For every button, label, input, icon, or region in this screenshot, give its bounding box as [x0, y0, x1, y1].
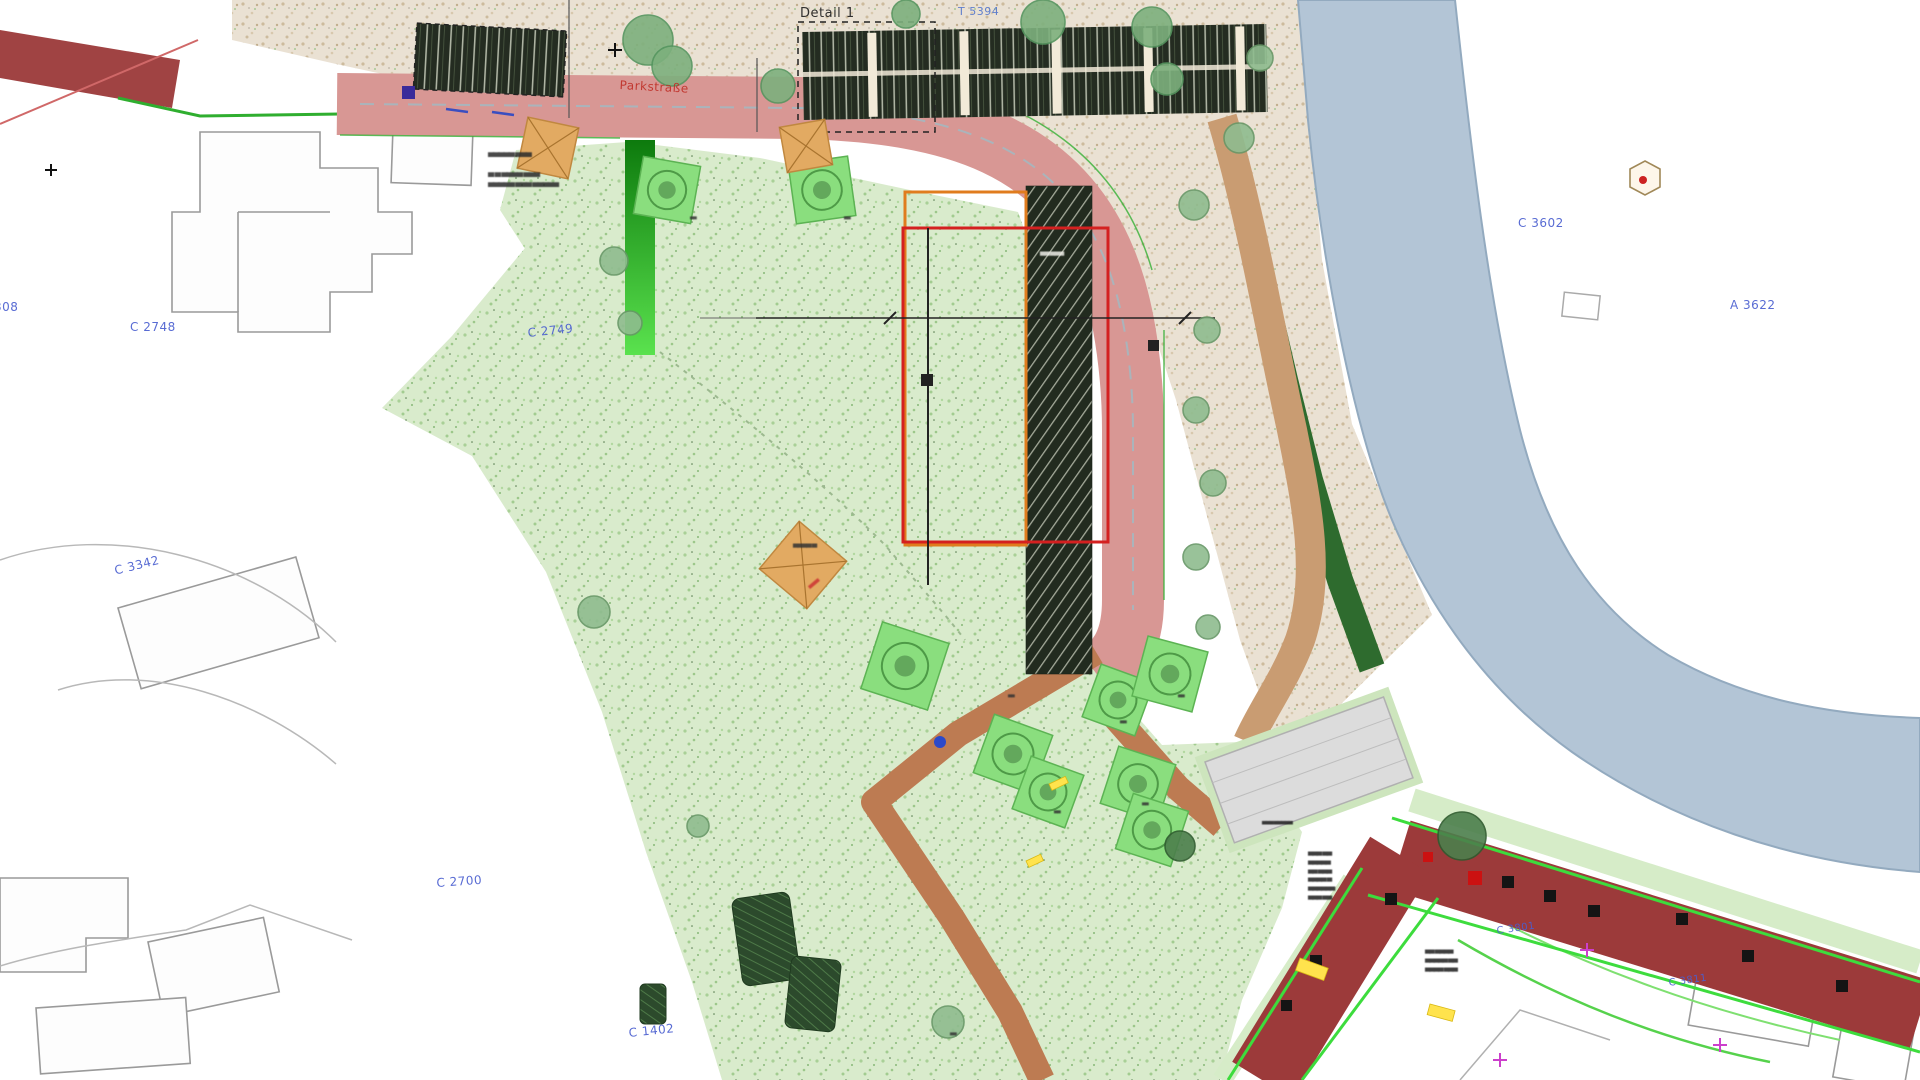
tree-symbol	[1247, 45, 1273, 71]
site-plan-canvas: Detail 1T 5394ParkstraßeC 2748C 2749C 33…	[0, 0, 1920, 1080]
tree-symbol	[1021, 0, 1065, 44]
tree-symbol	[1179, 190, 1209, 220]
tree-symbol	[892, 0, 920, 28]
tree-symbol	[1224, 123, 1254, 153]
survey-square-marker	[921, 374, 933, 386]
tree-symbol	[1132, 7, 1172, 47]
survey-square-marker	[1544, 890, 1556, 902]
survey-square-marker	[1423, 852, 1433, 862]
tree-symbol	[1194, 317, 1220, 343]
survey-square-marker	[1502, 876, 1514, 888]
tree-symbol	[1438, 812, 1486, 860]
tree-symbol	[1183, 397, 1209, 423]
site-plan-drawing	[0, 0, 1920, 1080]
tree-symbol	[600, 247, 628, 275]
planting-square	[633, 156, 700, 223]
survey-square-marker	[1588, 905, 1600, 917]
equipment-square	[779, 119, 832, 172]
parking-strip-vertical	[1026, 186, 1092, 674]
tree-symbol	[618, 311, 642, 335]
tree-symbol	[687, 815, 709, 837]
survey-square-marker	[1385, 893, 1397, 905]
tree-symbol	[578, 596, 610, 628]
blue-point-marker	[934, 736, 946, 748]
tree-symbol	[1165, 831, 1195, 861]
tree-symbol	[1151, 63, 1183, 95]
tree-symbol	[1196, 615, 1220, 639]
survey-square-marker	[1148, 340, 1159, 351]
tree-symbol	[932, 1006, 964, 1038]
survey-square-marker	[1836, 980, 1848, 992]
survey-square-marker	[1676, 913, 1688, 925]
survey-square-marker	[1468, 871, 1482, 885]
tree-symbol	[761, 69, 795, 103]
tree-symbol	[1200, 470, 1226, 496]
survey-square-marker	[1742, 950, 1754, 962]
survey-square-marker	[402, 86, 415, 99]
tree-symbol	[652, 46, 692, 86]
parking-row-small	[413, 23, 566, 97]
tree-symbol	[1183, 544, 1209, 570]
survey-square-marker	[1281, 1000, 1292, 1011]
equipment-square	[517, 117, 579, 179]
